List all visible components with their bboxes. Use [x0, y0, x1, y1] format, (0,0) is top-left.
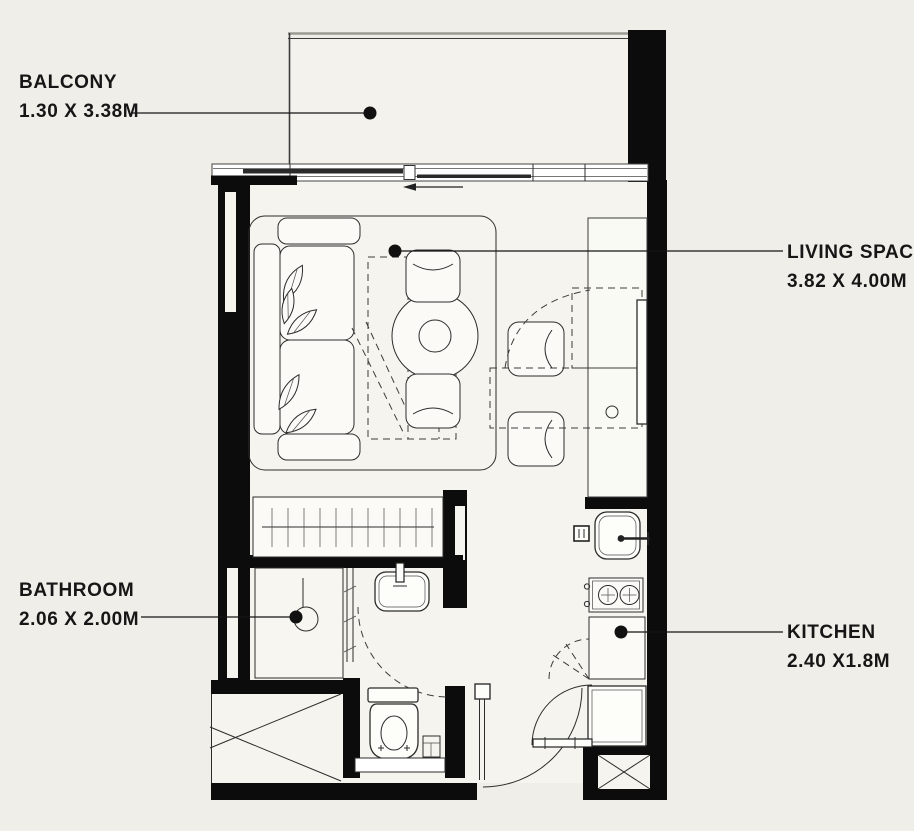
floor-plan-canvas: BALCONY 1.30 X 3.38M LIVING SPACE 3.82 X…	[0, 0, 914, 831]
wardrobe	[253, 497, 443, 557]
living-space-label: LIVING SPACE 3.82 X 4.00M	[787, 238, 914, 296]
chair-right-2	[508, 412, 564, 466]
chair-top	[406, 250, 460, 302]
kitchen-name: KITCHEN	[787, 618, 890, 647]
power-outlet-icon	[574, 526, 589, 541]
shaft-kitchen	[598, 755, 650, 789]
chair-bottom	[406, 374, 460, 428]
kitchen-dimensions: 2.40 X1.8M	[787, 647, 890, 676]
fridge-icon	[588, 686, 646, 746]
leader-dot-bathroom	[290, 611, 303, 624]
balcony-label: BALCONY 1.30 X 3.38M	[19, 68, 139, 126]
kitchen-label: KITCHEN 2.40 X1.8M	[787, 618, 890, 676]
bathroom-curb	[355, 758, 445, 772]
balcony-name: BALCONY	[19, 68, 139, 97]
stove-icon	[584, 578, 643, 612]
leader-dot-living	[389, 245, 402, 258]
leader-dot-balcony	[364, 107, 377, 120]
bathroom-label: BATHROOM 2.06 X 2.00M	[19, 576, 139, 634]
leader-dot-kitchen	[615, 626, 628, 639]
living-space-dimensions: 3.82 X 4.00M	[787, 267, 914, 296]
sofa	[254, 218, 360, 460]
tall-panel	[637, 300, 647, 424]
bathroom-dimensions: 2.06 X 2.00M	[19, 605, 139, 634]
bathroom-name: BATHROOM	[19, 576, 139, 605]
living-space-name: LIVING SPACE	[787, 238, 914, 267]
balcony-dimensions: 1.30 X 3.38M	[19, 97, 139, 126]
